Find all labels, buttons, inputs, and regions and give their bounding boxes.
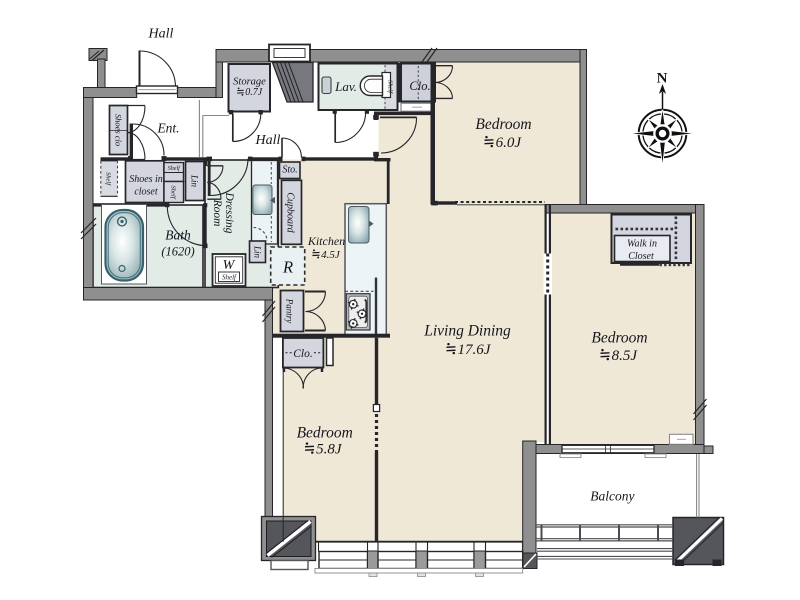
svg-text:Ent.: Ent. <box>156 120 179 135</box>
svg-text:Lav.: Lav. <box>334 79 357 94</box>
svg-text:closet: closet <box>134 187 158 198</box>
svg-text:Shoes clo: Shoes clo <box>114 114 124 146</box>
svg-text:Lin: Lin <box>252 245 262 259</box>
svg-text:Shelf: Shelf <box>387 80 394 94</box>
svg-text:Sto.: Sto. <box>282 165 297 176</box>
svg-text:Bedroom: Bedroom <box>591 330 647 347</box>
svg-text:Dressing: Dressing <box>223 191 235 233</box>
svg-text:Cupboard: Cupboard <box>285 192 296 233</box>
svg-text:Shelf: Shelf <box>168 165 181 172</box>
svg-text:Room: Room <box>211 199 223 227</box>
svg-text:0.7J: 0.7J <box>245 87 263 98</box>
svg-text:Pantry: Pantry <box>285 298 295 324</box>
svg-text:Bedroom: Bedroom <box>475 116 531 133</box>
svg-text:Walk in: Walk in <box>627 239 657 250</box>
svg-text:Hall: Hall <box>255 133 281 148</box>
svg-text:5.8J: 5.8J <box>316 441 343 457</box>
svg-text:W: W <box>223 258 236 273</box>
svg-text:Balcony: Balcony <box>590 488 634 503</box>
svg-text:Clo.: Clo. <box>293 348 313 360</box>
svg-text:Lin: Lin <box>190 174 200 188</box>
svg-text:Bedroom: Bedroom <box>297 425 353 442</box>
svg-text:Shelf: Shelf <box>105 172 112 186</box>
svg-text:N: N <box>657 71 668 87</box>
svg-text:17.6J: 17.6J <box>458 342 492 358</box>
svg-text:8.5J: 8.5J <box>612 348 639 364</box>
svg-text:(1620): (1620) <box>161 245 194 259</box>
svg-text:Living Dining: Living Dining <box>423 323 511 340</box>
svg-text:Storage: Storage <box>233 76 266 87</box>
svg-text:Kitchen: Kitchen <box>307 234 345 248</box>
svg-text:Shoes in: Shoes in <box>129 174 163 185</box>
svg-text:Hall: Hall <box>148 27 174 42</box>
svg-text:4.5J: 4.5J <box>321 249 341 261</box>
svg-text:Shelf: Shelf <box>222 274 237 282</box>
svg-text:R: R <box>282 257 293 276</box>
svg-text:Shelf: Shelf <box>170 186 177 200</box>
svg-text:Closet: Closet <box>628 251 654 262</box>
svg-text:Bath: Bath <box>165 227 191 242</box>
svg-text:Clo.: Clo. <box>409 79 430 93</box>
svg-text:6.0J: 6.0J <box>496 135 523 151</box>
